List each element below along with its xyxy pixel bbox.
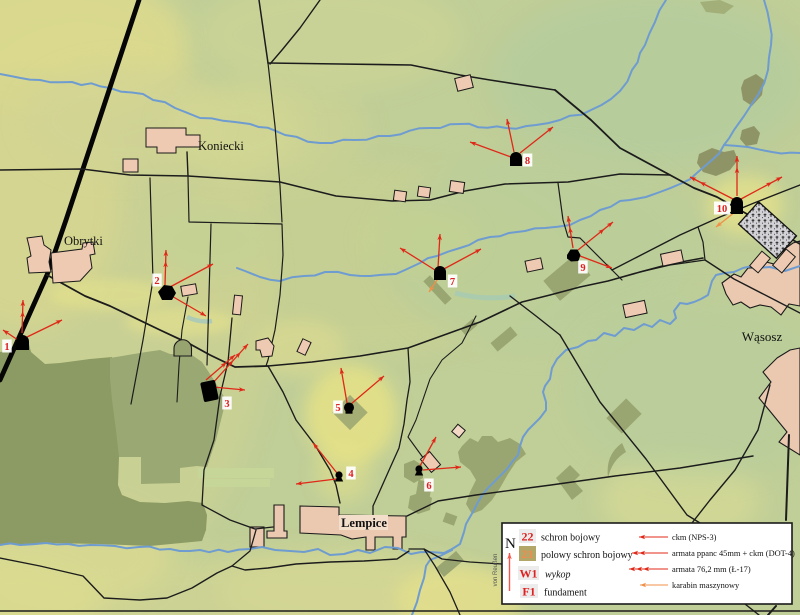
svg-text:2: 2 <box>154 276 159 287</box>
svg-text:W1: W1 <box>520 567 538 581</box>
svg-text:polowy schron bojowy: polowy schron bojowy <box>541 550 633 561</box>
svg-text:5: 5 <box>335 403 340 414</box>
svg-text:22: 22 <box>522 530 534 544</box>
svg-text:wykop: wykop <box>545 570 571 581</box>
svg-text:7: 7 <box>450 277 455 288</box>
svg-text:8: 8 <box>525 156 530 167</box>
svg-text:N: N <box>505 536 516 552</box>
svg-text:21: 21 <box>522 547 534 561</box>
svg-text:von Reußen: von Reußen <box>493 554 499 587</box>
svg-text:karabin maszynowy: karabin maszynowy <box>672 581 740 590</box>
svg-text:Koniecki: Koniecki <box>198 139 244 153</box>
svg-text:schron bojowy: schron bojowy <box>541 533 600 544</box>
svg-text:Lempice: Lempice <box>341 516 387 530</box>
svg-text:armata 76,2 mm (Ł-17): armata 76,2 mm (Ł-17) <box>672 565 751 574</box>
svg-text:10: 10 <box>717 204 728 215</box>
svg-text:4: 4 <box>348 469 354 480</box>
svg-text:6: 6 <box>426 481 431 492</box>
svg-text:3: 3 <box>224 399 229 410</box>
svg-text:fundament: fundament <box>544 588 587 599</box>
svg-text:1: 1 <box>4 342 9 353</box>
svg-text:9: 9 <box>580 263 585 274</box>
svg-text:armata ppanc 45mm + ckm (DOT-4: armata ppanc 45mm + ckm (DOT-4) <box>672 549 795 558</box>
svg-text:Wąsosz: Wąsosz <box>742 329 783 344</box>
svg-text:ckm (NPS-3): ckm (NPS-3) <box>672 533 717 542</box>
svg-text:Obrytki: Obrytki <box>64 234 103 248</box>
svg-text:F1: F1 <box>522 585 535 599</box>
